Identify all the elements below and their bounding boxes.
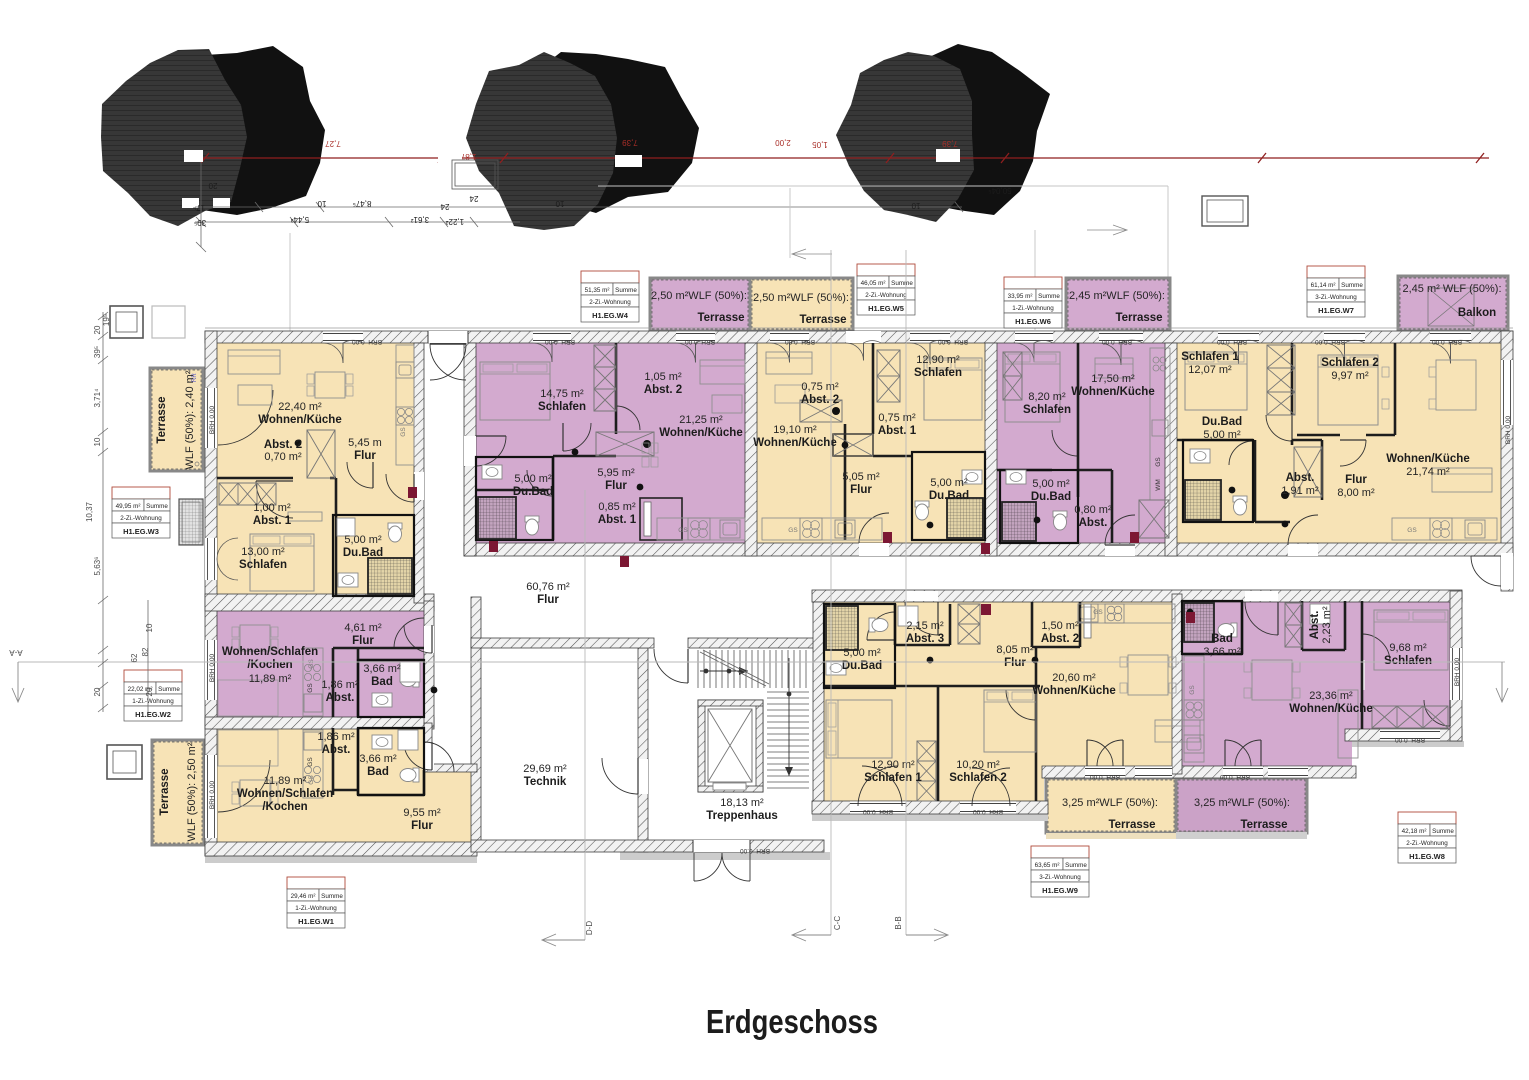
svg-text:GS: GS bbox=[788, 527, 798, 534]
svg-text:Wohnen/Küche: Wohnen/Küche bbox=[1032, 685, 1115, 697]
svg-text:Terrasse: Terrasse bbox=[697, 312, 744, 324]
svg-text:Schlafen: Schlafen bbox=[1384, 655, 1432, 667]
svg-text:Abst. 2: Abst. 2 bbox=[644, 384, 682, 396]
svg-text:Terrasse: Terrasse bbox=[799, 314, 846, 326]
svg-text:BRH 0.00: BRH 0.00 bbox=[1217, 338, 1247, 345]
svg-text:GS: GS bbox=[400, 427, 407, 437]
svg-text:Summe: Summe bbox=[615, 287, 637, 294]
svg-text:50,04⁵: 50,04⁵ bbox=[988, 186, 1011, 195]
svg-text:5,44³: 5,44³ bbox=[291, 215, 310, 224]
svg-text:12,90 m²: 12,90 m² bbox=[871, 759, 915, 771]
svg-text:WLF (50%): 2,50 m²: WLF (50%): 2,50 m² bbox=[186, 742, 198, 841]
svg-text:51,35 m²: 51,35 m² bbox=[585, 287, 610, 294]
svg-text:BRH 0.00: BRH 0.00 bbox=[1395, 736, 1425, 743]
svg-text:Wohnen/Küche: Wohnen/Küche bbox=[1289, 703, 1372, 715]
svg-text:H1.EG.W6: H1.EG.W6 bbox=[1015, 317, 1051, 326]
svg-text:H1.EG.W9: H1.EG.W9 bbox=[1042, 886, 1078, 895]
svg-text:Wohnen/Küche: Wohnen/Küche bbox=[753, 437, 836, 449]
svg-text:7,39: 7,39 bbox=[622, 138, 638, 147]
svg-text:2,50 m²WLF (50%):: 2,50 m²WLF (50%): bbox=[753, 292, 849, 304]
svg-text:5,63⁶: 5,63⁶ bbox=[93, 557, 102, 576]
svg-text:Balkon: Balkon bbox=[1458, 307, 1496, 319]
svg-text:Flur: Flur bbox=[605, 480, 627, 492]
svg-text:1,22²: 1,22² bbox=[446, 217, 465, 226]
svg-text:5,00 m²: 5,00 m² bbox=[344, 534, 382, 546]
svg-text:2,45 m² WLF (50%):: 2,45 m² WLF (50%): bbox=[1402, 283, 1501, 295]
svg-text:2,15 m²: 2,15 m² bbox=[906, 620, 944, 632]
svg-text:Wohnen/Küche: Wohnen/Küche bbox=[1386, 453, 1469, 465]
svg-text:1,50 m²: 1,50 m² bbox=[1041, 620, 1079, 632]
svg-text:GS: GS bbox=[1407, 527, 1417, 534]
svg-text:13,00 m²: 13,00 m² bbox=[241, 546, 285, 558]
svg-text:Abst.: Abst. bbox=[1309, 611, 1321, 640]
svg-text:21,74 m²: 21,74 m² bbox=[1406, 466, 1450, 478]
svg-text:Du.Bad: Du.Bad bbox=[1031, 491, 1071, 503]
svg-text:Erdgeschoss: Erdgeschoss bbox=[706, 1003, 878, 1040]
svg-text:1-Zi.-Wohnung: 1-Zi.-Wohnung bbox=[1012, 305, 1054, 312]
svg-text:Abst. 3: Abst. 3 bbox=[906, 633, 944, 645]
svg-text:17,50 m²: 17,50 m² bbox=[1091, 373, 1135, 385]
svg-text:1,05 m²: 1,05 m² bbox=[644, 371, 682, 383]
svg-text:Bad: Bad bbox=[367, 766, 389, 778]
svg-text:BRH 0.00: BRH 0.00 bbox=[938, 338, 968, 345]
svg-text:20: 20 bbox=[93, 325, 102, 334]
svg-text:Wohnen/Küche: Wohnen/Küche bbox=[659, 427, 742, 439]
svg-text:GS: GS bbox=[1093, 609, 1103, 616]
svg-text:Du.Bad: Du.Bad bbox=[929, 490, 969, 502]
svg-text:3,25 m²WLF (50%):: 3,25 m²WLF (50%): bbox=[1062, 797, 1158, 809]
svg-text:Terrasse: Terrasse bbox=[1108, 819, 1155, 831]
svg-text:H1.EG.W1: H1.EG.W1 bbox=[298, 917, 334, 926]
svg-text:0,75 m²: 0,75 m² bbox=[878, 412, 916, 424]
svg-text:9,55 m²: 9,55 m² bbox=[403, 807, 441, 819]
svg-text:GS: GS bbox=[308, 659, 315, 669]
svg-text:BRH 0.00: BRH 0.00 bbox=[973, 808, 1003, 815]
svg-text:8,05 m²: 8,05 m² bbox=[996, 644, 1034, 656]
svg-text:GS: GS bbox=[307, 683, 314, 693]
svg-text:17⁵: 17⁵ bbox=[193, 203, 205, 212]
svg-text:Technik: Technik bbox=[524, 776, 567, 788]
svg-text:10: 10 bbox=[145, 623, 154, 632]
svg-text:BRH 0.00: BRH 0.00 bbox=[1454, 658, 1461, 687]
svg-text:H1.EG.W5: H1.EG.W5 bbox=[868, 304, 904, 313]
svg-text:49,95 m²: 49,95 m² bbox=[116, 503, 141, 510]
svg-text:Flur: Flur bbox=[1004, 657, 1026, 669]
svg-text:10,20 m²: 10,20 m² bbox=[956, 759, 1000, 771]
svg-text:7,39: 7,39 bbox=[942, 139, 958, 148]
svg-text:19,10 m²: 19,10 m² bbox=[773, 424, 817, 436]
svg-text:BRH 0.00: BRH 0.00 bbox=[209, 654, 216, 683]
svg-text:10: 10 bbox=[93, 437, 102, 446]
svg-text:46,05 m²: 46,05 m² bbox=[861, 280, 886, 287]
svg-text:3,71⁴: 3,71⁴ bbox=[93, 388, 102, 408]
svg-text:Du.Bad: Du.Bad bbox=[343, 547, 383, 559]
svg-text:Abst. 1: Abst. 1 bbox=[878, 425, 917, 437]
svg-text:BRH 0.00: BRH 0.00 bbox=[1102, 338, 1132, 345]
svg-text:12,90 m²: 12,90 m² bbox=[916, 354, 960, 366]
svg-text:Abst. 2: Abst. 2 bbox=[801, 394, 839, 406]
svg-text:0,80 m²: 0,80 m² bbox=[1074, 504, 1112, 516]
svg-text:1,86 m²: 1,86 m² bbox=[317, 731, 355, 743]
svg-text:BRH 0.00: BRH 0.00 bbox=[209, 781, 216, 810]
svg-text:Wohnen/Küche: Wohnen/Küche bbox=[258, 414, 341, 426]
svg-text:Terrasse: Terrasse bbox=[1115, 312, 1162, 324]
svg-text:GS: GS bbox=[308, 775, 315, 785]
svg-text:Bad: Bad bbox=[1211, 633, 1233, 645]
svg-text:A-A: A-A bbox=[9, 648, 23, 657]
svg-text:Schlafen: Schlafen bbox=[538, 401, 586, 413]
svg-text:Du.Bad: Du.Bad bbox=[513, 486, 553, 498]
svg-text:8,00 m²: 8,00 m² bbox=[1337, 487, 1375, 499]
svg-text:BRH 0.00: BRH 0.00 bbox=[1505, 416, 1512, 445]
svg-text:5,05 m²: 5,05 m² bbox=[842, 471, 880, 483]
svg-text:Summe: Summe bbox=[146, 503, 168, 510]
svg-text:20,60 m²: 20,60 m² bbox=[1052, 672, 1096, 684]
svg-text:82: 82 bbox=[141, 647, 150, 656]
svg-text:62: 62 bbox=[130, 653, 139, 662]
svg-text:C-C: C-C bbox=[833, 916, 842, 930]
svg-text:10: 10 bbox=[317, 199, 326, 208]
svg-text:14,75 m²: 14,75 m² bbox=[540, 388, 584, 400]
svg-text:20: 20 bbox=[145, 687, 154, 696]
svg-text:2,50 m²WLF (50%):: 2,50 m²WLF (50%): bbox=[651, 290, 747, 302]
svg-text:20: 20 bbox=[93, 687, 102, 696]
svg-text:11,89 m²: 11,89 m² bbox=[264, 775, 307, 787]
svg-text:Bad: Bad bbox=[371, 676, 393, 688]
svg-text:H1.EG.W4: H1.EG.W4 bbox=[592, 311, 629, 320]
svg-text:61,14 m²: 61,14 m² bbox=[1311, 282, 1336, 289]
svg-text:Du.Bad: Du.Bad bbox=[1202, 416, 1242, 428]
svg-text:BRH 0.00: BRH 0.00 bbox=[1090, 773, 1120, 780]
svg-text:1-Zi.-Wohnung: 1-Zi.-Wohnung bbox=[132, 698, 174, 705]
svg-text:Flur: Flur bbox=[1345, 474, 1367, 486]
svg-text:Abst. 1: Abst. 1 bbox=[598, 514, 637, 526]
svg-text:39⁵: 39⁵ bbox=[93, 346, 102, 358]
svg-text:Treppenhaus: Treppenhaus bbox=[706, 810, 778, 822]
svg-text:Flur: Flur bbox=[354, 450, 376, 462]
svg-text:0,85 m²: 0,85 m² bbox=[598, 501, 636, 513]
svg-text:3,66 m²: 3,66 m² bbox=[359, 753, 397, 765]
svg-text:1,00 m²: 1,00 m² bbox=[253, 502, 291, 514]
svg-text:Wohnen/Küche: Wohnen/Küche bbox=[1071, 386, 1154, 398]
svg-text:H1.EG.W3: H1.EG.W3 bbox=[123, 527, 159, 536]
svg-text:Flur: Flur bbox=[352, 635, 374, 647]
svg-text:Summe: Summe bbox=[1432, 828, 1454, 835]
svg-text:9,97 m²: 9,97 m² bbox=[1331, 370, 1369, 382]
svg-text:5,95 m²: 5,95 m² bbox=[597, 467, 635, 479]
svg-text:Abst. 2: Abst. 2 bbox=[264, 439, 302, 451]
svg-text:8,20 m²: 8,20 m² bbox=[1028, 391, 1066, 403]
svg-text:3,66 m²: 3,66 m² bbox=[1203, 646, 1241, 658]
svg-text:2-Zi.-Wohnung: 2-Zi.-Wohnung bbox=[589, 299, 631, 306]
svg-text:Terrasse: Terrasse bbox=[1240, 819, 1287, 831]
svg-text:7,27: 7,27 bbox=[325, 139, 341, 148]
svg-text:WM: WM bbox=[1155, 479, 1162, 491]
svg-text:Terrasse: Terrasse bbox=[159, 768, 171, 815]
svg-text:2-Zi.-Wohnung: 2-Zi.-Wohnung bbox=[120, 515, 162, 522]
svg-text:BRH 0.00: BRH 0.00 bbox=[1432, 338, 1462, 345]
svg-text:BRH 0.00: BRH 0.00 bbox=[1315, 338, 1345, 345]
svg-text:3-Zi.-Wohnung: 3-Zi.-Wohnung bbox=[1315, 294, 1357, 301]
svg-text:H1.EG.W8: H1.EG.W8 bbox=[1409, 852, 1445, 861]
svg-text:Abst.: Abst. bbox=[322, 744, 351, 756]
svg-text:BRH 0.00: BRH 0.00 bbox=[209, 406, 216, 435]
svg-text:Abst. 1: Abst. 1 bbox=[253, 515, 292, 527]
svg-text:5,00 m²: 5,00 m² bbox=[514, 473, 552, 485]
svg-text:Summe: Summe bbox=[1065, 862, 1087, 869]
svg-text:Schlafen: Schlafen bbox=[914, 367, 962, 379]
svg-text:1,91 m²: 1,91 m² bbox=[1281, 485, 1319, 497]
svg-text:20: 20 bbox=[208, 181, 217, 190]
svg-text:2,23 m²: 2,23 m² bbox=[1321, 606, 1333, 644]
svg-text:GS: GS bbox=[678, 527, 688, 534]
svg-text:/Kochen: /Kochen bbox=[262, 801, 307, 813]
svg-text:39⁵: 39⁵ bbox=[194, 218, 206, 227]
svg-text:5,00 m²: 5,00 m² bbox=[843, 647, 881, 659]
svg-text:H1.EG.W2: H1.EG.W2 bbox=[135, 710, 171, 719]
svg-text:Summe: Summe bbox=[1341, 282, 1363, 289]
svg-text:5,45 m: 5,45 m bbox=[348, 437, 382, 449]
svg-text:Wohnen/Schlafen: Wohnen/Schlafen bbox=[222, 646, 318, 658]
svg-text:10: 10 bbox=[911, 201, 920, 210]
svg-text:3,61²: 3,61² bbox=[411, 215, 430, 224]
svg-text:5,00 m²: 5,00 m² bbox=[1032, 478, 1070, 490]
svg-text:2,45 m²WLF (50%):: 2,45 m²WLF (50%): bbox=[1069, 290, 1165, 302]
svg-text:Schlafen 1: Schlafen 1 bbox=[1181, 351, 1239, 363]
svg-text:BRH 0.00: BRH 0.00 bbox=[685, 338, 715, 345]
svg-text:63,65 m²: 63,65 m² bbox=[1035, 862, 1060, 869]
svg-text:5,00 m²: 5,00 m² bbox=[930, 477, 968, 489]
svg-text:2,00: 2,00 bbox=[775, 138, 791, 147]
svg-text:18,13 m²: 18,13 m² bbox=[720, 797, 764, 809]
svg-text:Abst.: Abst. bbox=[326, 692, 355, 704]
svg-text:10: 10 bbox=[555, 199, 564, 208]
svg-text:GS: GS bbox=[307, 757, 314, 767]
svg-text:8,47⁵: 8,47⁵ bbox=[353, 199, 372, 208]
svg-text:0,75 m²: 0,75 m² bbox=[801, 381, 839, 393]
svg-text:D-D: D-D bbox=[585, 921, 594, 935]
svg-text:BRH 0.00: BRH 0.00 bbox=[863, 808, 893, 815]
svg-text:1-Zi.-Wohnung: 1-Zi.-Wohnung bbox=[295, 905, 337, 912]
svg-text:BRH 0.00: BRH 0.00 bbox=[545, 338, 575, 345]
svg-text:H1.EG.W7: H1.EG.W7 bbox=[1318, 306, 1354, 315]
svg-text:Schlafen: Schlafen bbox=[239, 559, 287, 571]
svg-text:2-Zi.-Wohnung: 2-Zi.-Wohnung bbox=[865, 292, 907, 299]
svg-text:BRH 0.00: BRH 0.00 bbox=[785, 338, 815, 345]
svg-text:BRH 0.00: BRH 0.00 bbox=[352, 338, 382, 345]
svg-text:22,40 m²: 22,40 m² bbox=[278, 401, 322, 413]
svg-text:Schlafen: Schlafen bbox=[1023, 404, 1071, 416]
svg-text:Summe: Summe bbox=[158, 686, 180, 693]
svg-text:10,37: 10,37 bbox=[85, 501, 94, 522]
svg-text:Summe: Summe bbox=[1038, 293, 1060, 300]
svg-text:Summe: Summe bbox=[891, 280, 913, 287]
svg-text:3-Zi.-Wohnung: 3-Zi.-Wohnung bbox=[1039, 874, 1081, 881]
svg-text:Wohnen/Schlafen: Wohnen/Schlafen bbox=[237, 788, 333, 800]
svg-text:1,05: 1,05 bbox=[812, 140, 828, 149]
svg-text:29,69 m²: 29,69 m² bbox=[523, 763, 567, 775]
svg-text:0,70 m²: 0,70 m² bbox=[264, 451, 302, 463]
svg-text:/Kochen: /Kochen bbox=[247, 659, 292, 671]
svg-text:24: 24 bbox=[440, 202, 449, 211]
svg-text:2-Zi.-Wohnung: 2-Zi.-Wohnung bbox=[1406, 840, 1448, 847]
svg-text:B-B: B-B bbox=[894, 916, 903, 929]
svg-text:Schlafen 2: Schlafen 2 bbox=[1321, 357, 1379, 369]
svg-text:4,61 m²: 4,61 m² bbox=[344, 622, 382, 634]
svg-text:12,07 m²: 12,07 m² bbox=[1188, 364, 1232, 376]
svg-text:42,18 m²: 42,18 m² bbox=[1402, 828, 1427, 835]
svg-text:21,25 m²: 21,25 m² bbox=[679, 414, 723, 426]
svg-text:Flur: Flur bbox=[850, 484, 872, 496]
svg-text:GS: GS bbox=[1155, 457, 1162, 467]
svg-text:29,46 m²: 29,46 m² bbox=[291, 893, 316, 900]
svg-text:33,95 m²: 33,95 m² bbox=[1008, 293, 1033, 300]
svg-text:BRH 0.00: BRH 0.00 bbox=[1220, 773, 1250, 780]
svg-text:Schlafen 1: Schlafen 1 bbox=[864, 772, 922, 784]
svg-text:GS: GS bbox=[1189, 685, 1196, 695]
svg-text:Abst. 2: Abst. 2 bbox=[1041, 633, 1079, 645]
svg-text:11,89 m²: 11,89 m² bbox=[249, 673, 292, 685]
svg-text:23,36 m²: 23,36 m² bbox=[1309, 690, 1353, 702]
svg-text:5,00 m²: 5,00 m² bbox=[1203, 429, 1241, 441]
svg-text:Summe: Summe bbox=[321, 893, 343, 900]
svg-text:3,66 m²: 3,66 m² bbox=[363, 663, 401, 675]
svg-text:Flur: Flur bbox=[537, 594, 559, 606]
svg-text:Flur: Flur bbox=[411, 820, 433, 832]
svg-text:1,86 m²: 1,86 m² bbox=[321, 679, 359, 691]
svg-text:60,76 m²: 60,76 m² bbox=[526, 581, 570, 593]
svg-text:9,68 m²: 9,68 m² bbox=[1389, 642, 1427, 654]
svg-text:BRH 0.00: BRH 0.00 bbox=[740, 847, 770, 854]
svg-text:WLF (50%): 2,40 m²: WLF (50%): 2,40 m² bbox=[184, 370, 196, 469]
svg-text:Abst.: Abst. bbox=[1286, 472, 1315, 484]
svg-text:3,25 m²WLF (50%):: 3,25 m²WLF (50%): bbox=[1194, 797, 1290, 809]
svg-text:Terrasse: Terrasse bbox=[156, 396, 168, 443]
svg-text:Schlafen 2: Schlafen 2 bbox=[949, 772, 1007, 784]
svg-text:24: 24 bbox=[469, 194, 478, 203]
svg-text:Abst.: Abst. bbox=[1079, 517, 1108, 529]
